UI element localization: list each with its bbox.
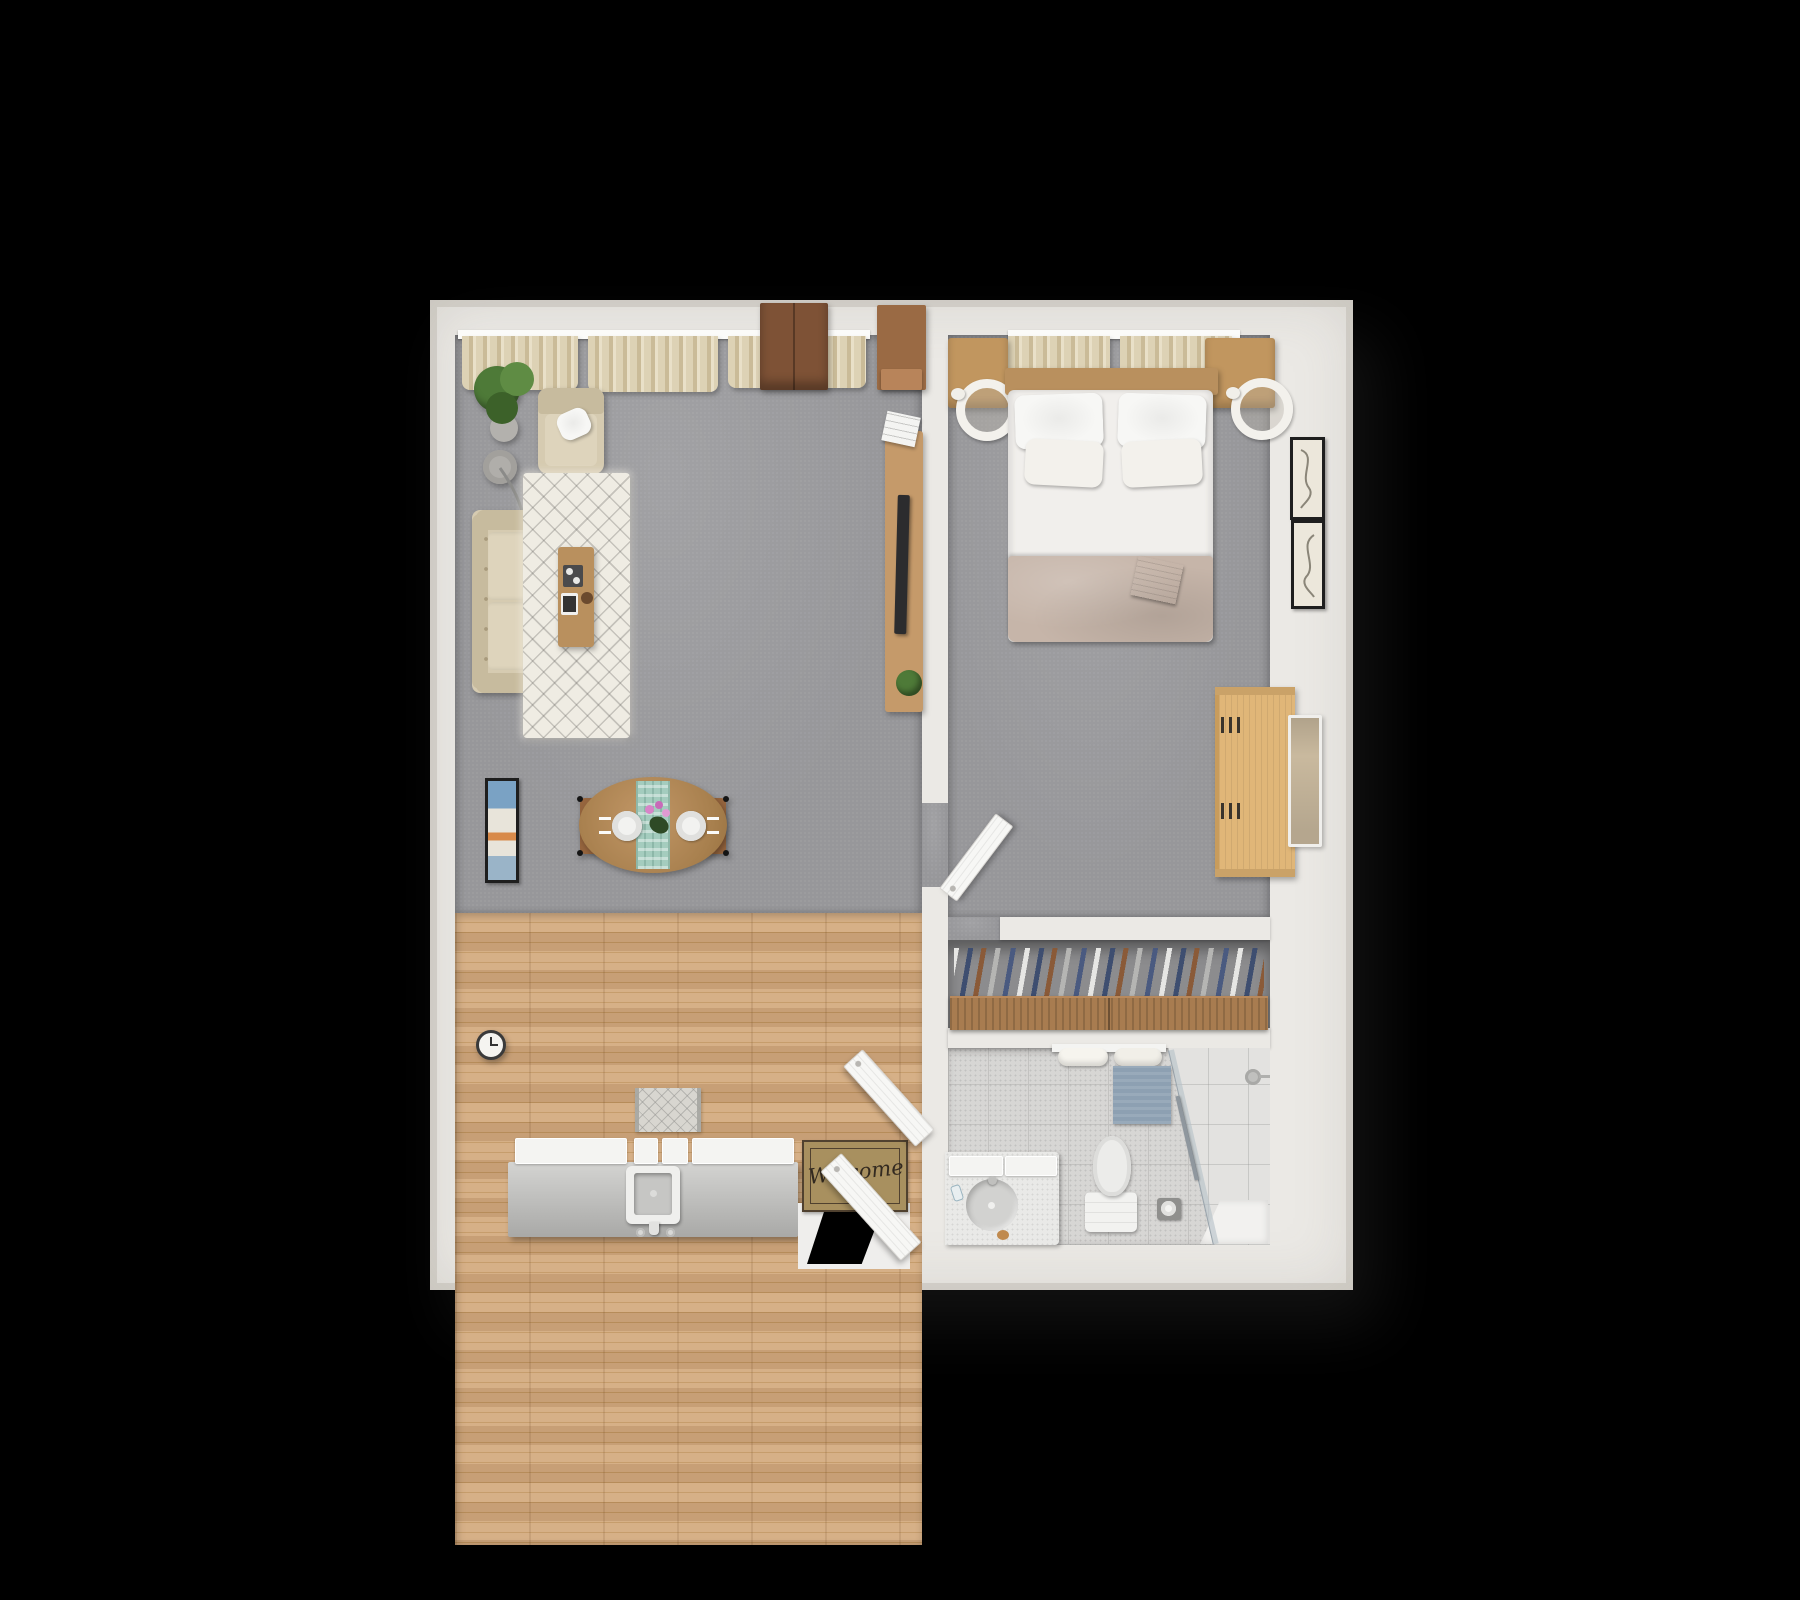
cup [573,577,580,584]
picture-frame [1291,520,1325,609]
clock-hand [491,1044,498,1046]
toilet-seat [1093,1136,1131,1196]
toothbrush-cup [951,1185,963,1201]
cup [566,568,573,575]
table-lamp-icon [1231,378,1293,440]
wall-mounted-tv-icon [1288,715,1322,847]
dresser-rail [1215,869,1295,877]
armchair [538,388,604,474]
vanity-top-panel [1005,1156,1057,1176]
frame-line-art [1294,523,1322,606]
clothes-rail [950,996,1268,1030]
wall-clock-icon [476,1030,506,1060]
door-hinge [854,1060,862,1068]
plate [612,811,642,841]
sofa-back [472,514,488,689]
faucet-icon [649,1222,659,1235]
bed [1008,390,1213,642]
faucet-knob [636,1228,645,1237]
bath-mat [1113,1066,1171,1124]
flowers-icon [645,805,654,814]
dresser [1215,687,1295,877]
hand-brush [997,1230,1009,1240]
pillow [1121,438,1203,488]
cabinet-lower-shelf [881,369,922,390]
flowers-icon [662,809,670,817]
door-hinge [949,884,957,892]
plate [676,811,706,841]
tablet [561,593,578,615]
paper-roll [1161,1201,1176,1216]
dresser-rail [1215,687,1295,695]
cutlery-icon [707,831,719,834]
bedroom-doorway [922,803,948,887]
chair-arm-tip [577,796,583,802]
lamp-detail [951,388,965,400]
potted-plant-leaves [486,392,518,424]
chair-arm-tip [723,796,729,802]
toilet-paper-holder [1157,1198,1181,1220]
frame-line-art [1293,440,1322,517]
tablet-screen [563,596,576,612]
toilet [1085,1192,1137,1232]
wall-art [485,778,519,883]
faucet-knob [666,1228,675,1237]
drain [650,1190,657,1197]
towel [1058,1048,1108,1066]
vanity-top-panel [949,1156,1003,1176]
chair-arm-tip [577,850,583,856]
sink-faucet [988,1176,997,1185]
counter-top-panel [662,1138,688,1164]
cabinet [877,305,926,390]
bedroom-closet-wall [1000,917,1270,940]
wardrobe-cabinet [760,303,828,390]
towel [1114,1048,1162,1066]
pillow [1024,438,1104,488]
counter-top-panel [515,1138,627,1164]
vanity [945,1152,1059,1245]
chair-arm-tip [723,850,729,856]
counter-top-panel [634,1138,658,1164]
drawer-handles [1221,803,1243,819]
rail-seam [1108,998,1110,1030]
kitchen-rug [635,1088,701,1132]
floor-plan: Welcome [430,300,1353,1290]
console-plant [896,670,922,696]
coffee-table [558,547,594,647]
bowl [581,592,593,604]
cutlery-icon [707,817,719,820]
shower-arm [1259,1075,1270,1078]
hanging-clothes [954,948,1264,998]
wardrobe-seam [793,303,795,390]
serving-tray [563,565,583,587]
drawer-handles [1221,717,1243,733]
curtains [588,336,718,392]
lamp-detail [1226,387,1240,399]
potted-plant-leaves [500,362,534,396]
cutlery-icon [599,817,611,820]
dining-table [579,777,727,873]
kitchen-sink [626,1166,680,1224]
drain [988,1202,995,1209]
passage-floor [948,917,1000,940]
door-hinge [833,1165,841,1173]
picture-frame [1290,437,1325,520]
counter-top-panel [692,1138,794,1164]
cutlery-icon [599,831,611,834]
flowers-icon [655,801,663,809]
